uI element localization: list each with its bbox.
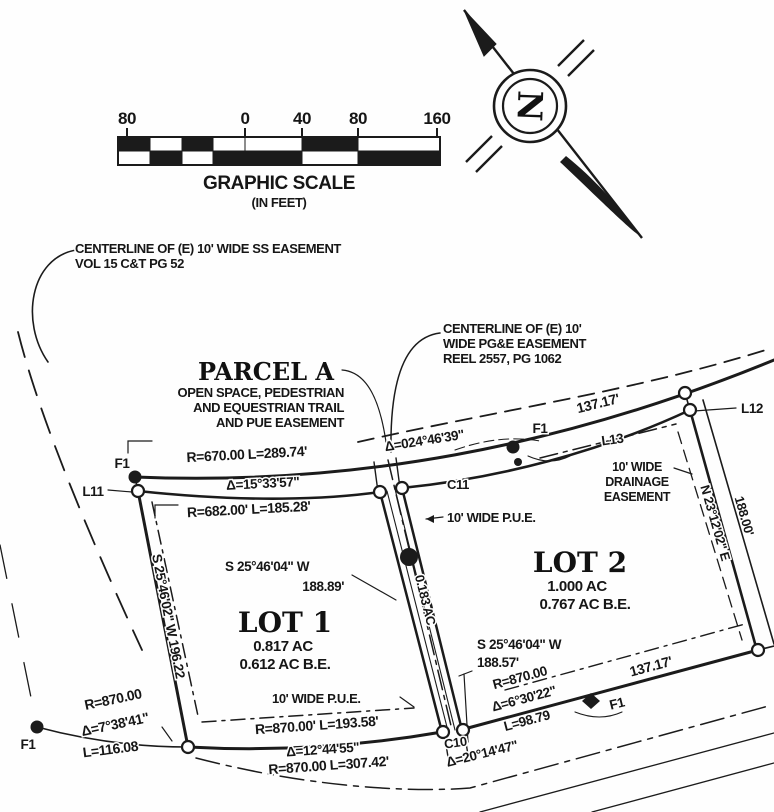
scale-tick-80l: 80 [118, 109, 136, 128]
monument-open [684, 404, 696, 416]
tick-d738 [162, 727, 172, 741]
monument-found-f1 [31, 721, 44, 734]
scale-ticks [127, 128, 437, 137]
lot2-east-envelope [678, 432, 742, 640]
parcelA-leader [342, 370, 386, 442]
graphic-scale-bar: 80 0 40 80 160 GRAPHIC SCALE (IN FEET) [118, 109, 451, 210]
pge-easement-note-line1: CENTERLINE OF (E) 10' [443, 321, 582, 336]
leader-L11 [108, 490, 132, 492]
dim-delta024: Δ=024°46'39" [383, 427, 465, 454]
dim-lot1-east-length: 188.89' [302, 579, 344, 594]
parcelA-line1: OPEN SPACE, PEDESTRIAN [178, 385, 345, 400]
parcelA-line3: AND PUE EASEMENT [216, 415, 344, 430]
plat-drawing: 80 0 40 80 160 GRAPHIC SCALE (IN FEET) N [0, 0, 774, 812]
marker-c11: C11 [447, 477, 469, 492]
west-boundary-extension [0, 545, 37, 727]
ss-easement-note-line1: CENTERLINE OF (E) 10' WIDE SS EASEMENT [75, 241, 341, 256]
dim-ne-length: 188.00' [732, 494, 758, 537]
survey-plat-page: 80 0 40 80 160 GRAPHIC SCALE (IN FEET) N [0, 0, 774, 812]
ss-easement-leader [32, 250, 76, 362]
marker-c10: C10 [443, 734, 468, 752]
dim-r870-lot1: R=870.00' L=193.58' [254, 713, 378, 738]
scale-units: (IN FEET) [252, 195, 307, 210]
lot2-area: 1.000 AC [547, 578, 607, 595]
lot1-title: LOT 1 [238, 606, 332, 639]
dim-r682: R=682.00' L=185.28' [187, 498, 311, 520]
dim-l116: L=116.08 [82, 738, 140, 761]
road-edge-2 [592, 763, 774, 812]
ss-easement-note-line2: VOL 15 C&T PG 52 [75, 256, 184, 271]
monument-open [679, 387, 691, 399]
pue-top-label: 10' WIDE P.U.E. [447, 510, 536, 525]
marker-f1-bottomleft: F1 [21, 737, 37, 752]
dim-lot1-east-bearing: S 25°46'04" W [225, 559, 310, 574]
scale-title: GRAPHIC SCALE [203, 173, 355, 194]
strip-area: 0.183 AC [412, 573, 439, 627]
scale-tick-160: 160 [423, 109, 450, 128]
north-arrow: N [464, 10, 642, 238]
monument-open [396, 482, 408, 494]
marker-f1-bottommid: F1 [608, 694, 627, 712]
scale-tick-40: 40 [293, 109, 311, 128]
lot2-south-envelope [505, 624, 745, 690]
lot2-title: LOT 2 [533, 546, 627, 579]
lot1-area: 0.817 AC [253, 638, 313, 655]
monument-found-f1 [507, 441, 520, 454]
dim-west-bearing: S 25°46'02" W 196.22 [149, 553, 188, 680]
north-letter: N [508, 90, 549, 122]
marker-f1-topleft: F1 [115, 456, 131, 471]
dim-delta738: Δ=7°38'41" [80, 709, 151, 739]
north-arrow-head [464, 10, 496, 56]
monument-open [132, 485, 144, 497]
pue-arrowhead [426, 515, 434, 523]
parcelA-north-dashed-arc [358, 348, 772, 442]
monument-found-f1 [129, 471, 142, 484]
f1-swoosh-bottom [575, 712, 622, 717]
dim-lot2-west-length: 188.57' [477, 655, 519, 670]
marker-f1-topmid: F1 [533, 421, 549, 436]
pge-easement-note-line2: WIDE PG&E EASEMENT [443, 336, 586, 351]
scale-tick-0: 0 [240, 109, 249, 128]
drainage-label-line3: EASEMENT [604, 490, 671, 504]
pge-easement-note-line3: REEL 2557, PG 1062 [443, 351, 561, 366]
leader-L12 [694, 408, 736, 411]
monument-open [374, 486, 386, 498]
leader-18889 [352, 575, 396, 600]
centerline-point [514, 458, 522, 466]
dim-delta15: Δ=15°33'57" [226, 474, 300, 493]
marker-l11: L11 [82, 484, 104, 499]
marker-l13: L13 [600, 430, 625, 448]
dim-r870-sw: R=870.00 [83, 685, 144, 713]
monument-open [182, 741, 194, 753]
lot2-be-area: 0.767 AC B.E. [540, 596, 631, 613]
monument-open [752, 644, 764, 656]
dim-r670: R=670.00 L=289.74' [186, 443, 307, 465]
bracket-r670 [128, 441, 152, 453]
lot1-north-arc [138, 491, 380, 499]
dim-137-top: 137.17' [575, 390, 621, 416]
leader-pue-bottom [400, 697, 414, 707]
pue-bottom-label: 10' WIDE P.U.E. [272, 691, 361, 706]
bracket-r682 [155, 505, 178, 518]
north-arrow-tail [560, 156, 640, 236]
drainage-label-line2: DRAINAGE [605, 475, 669, 489]
marker-l12: L12 [741, 401, 763, 416]
scale-tick-80r: 80 [349, 109, 367, 128]
pge-pole-point [400, 548, 418, 566]
parcelA-title: PARCEL A [198, 357, 334, 386]
lot1-be-area: 0.612 AC B.E. [240, 656, 331, 673]
dim-ne-bearing: N 23°12'02" E [697, 483, 733, 563]
parcelA-line2: AND EQUESTRIAN TRAIL [193, 400, 344, 415]
drainage-label-line1: 10' WIDE [612, 460, 662, 474]
dim-lot2-west-bearing: S 25°46'04" W [477, 637, 562, 652]
